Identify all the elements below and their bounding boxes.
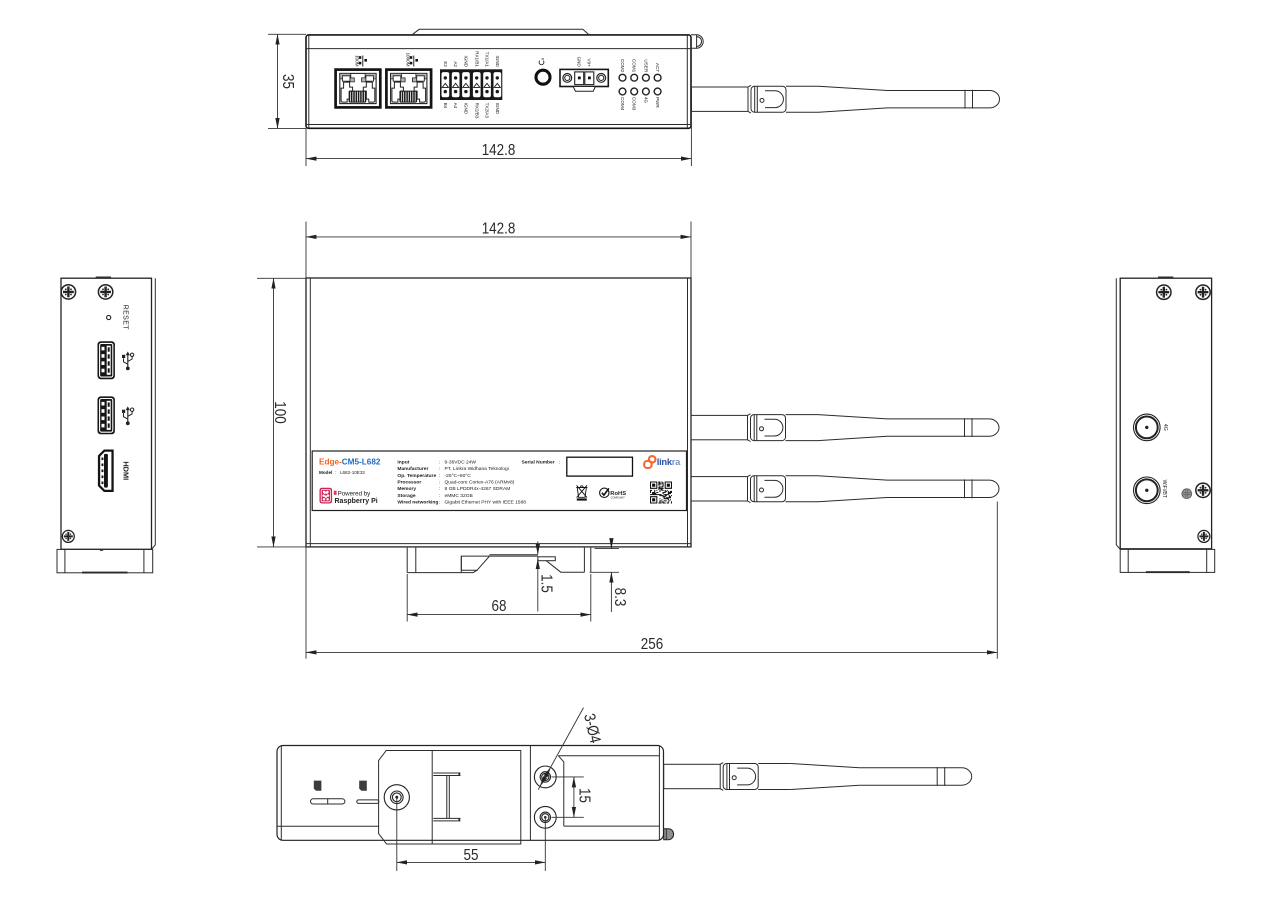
svg-text:Edge-CM5-L682: Edge-CM5-L682: [319, 458, 381, 467]
svg-text:15: 15: [575, 788, 592, 803]
svg-text:A4: A4: [453, 103, 458, 109]
svg-text:WiFi/BT: WiFi/BT: [1161, 480, 1167, 499]
svg-text:68: 68: [492, 598, 507, 615]
svg-text:142.8: 142.8: [482, 142, 516, 159]
svg-text:RX1/B1: RX1/B1: [474, 51, 479, 67]
svg-text:PWR: PWR: [655, 97, 660, 108]
svg-text:Serial Number: Serial Number: [522, 459, 555, 465]
svg-text:COM4: COM4: [620, 97, 625, 111]
svg-text:Manufacturer: Manufacturer: [397, 466, 428, 472]
svg-text:E2: E2: [443, 61, 448, 67]
svg-text:IGND: IGND: [495, 56, 500, 68]
svg-text:TX2/A3: TX2/A3: [485, 103, 490, 119]
svg-text::: :: [439, 474, 440, 479]
svg-text:PT. Linkra Widhana Teknologi: PT. Linkra Widhana Teknologi: [445, 466, 509, 472]
svg-text:1.5: 1.5: [537, 574, 554, 593]
svg-text:linkra: linkra: [657, 456, 681, 467]
svg-text:8.3: 8.3: [611, 588, 628, 607]
svg-text:Quad-core Cortex-A76 (ARMv8): Quad-core Cortex-A76 (ARMv8): [445, 480, 515, 486]
svg-text::: :: [559, 460, 560, 465]
svg-text:Storage: Storage: [397, 493, 415, 499]
svg-text:COM3: COM3: [632, 97, 637, 111]
svg-text:Raspberry Pi: Raspberry Pi: [335, 498, 378, 505]
svg-text:55: 55: [464, 847, 479, 864]
svg-text:142.8: 142.8: [482, 220, 516, 237]
svg-text:IGND: IGND: [495, 103, 500, 115]
svg-text:-25°C~60°C: -25°C~60°C: [445, 473, 472, 479]
svg-text:Processor: Processor: [397, 480, 421, 486]
svg-text:IGND: IGND: [464, 103, 469, 115]
svg-text:GND: GND: [577, 57, 582, 68]
svg-text:Gigabit Ethernet PHY with IEEE: Gigabit Ethernet PHY with IEEE 1588: [445, 500, 527, 506]
svg-text:Wired networking: Wired networking: [397, 500, 438, 506]
svg-text:RX2/B3: RX2/B3: [474, 103, 479, 119]
svg-text:V9+: V9+: [587, 58, 592, 67]
svg-text:256: 256: [641, 636, 663, 653]
svg-text::: :: [439, 481, 440, 486]
svg-text:A2: A2: [453, 61, 458, 67]
svg-text:TX1/A1: TX1/A1: [485, 52, 490, 68]
svg-text::: :: [439, 501, 440, 506]
svg-text:Powered by: Powered by: [338, 491, 372, 498]
svg-text:9-36VDC 24W: 9-36VDC 24W: [445, 459, 477, 465]
svg-text:100: 100: [271, 401, 288, 423]
svg-text:4G: 4G: [1162, 424, 1168, 431]
svg-text:HDMI: HDMI: [122, 461, 131, 480]
svg-text:Model : L682-10E32: Model : L682-10E32: [319, 470, 365, 475]
svg-text:IGND: IGND: [464, 56, 469, 68]
svg-text:COM1: COM1: [632, 59, 637, 73]
svg-text:ACT: ACT: [655, 63, 660, 72]
svg-text:Memory: Memory: [397, 486, 416, 492]
svg-text::: :: [439, 460, 440, 465]
svg-text:COM2: COM2: [620, 59, 625, 73]
svg-text:100M: 100M: [355, 55, 360, 67]
svg-text::: :: [439, 487, 440, 492]
svg-text:Op. Temperature: Op. Temperature: [397, 473, 436, 479]
svg-text:4G: 4G: [643, 97, 648, 104]
svg-text:Input: Input: [397, 459, 409, 465]
svg-text:8 GB LPDDR4x-4267 SDRAM: 8 GB LPDDR4x-4267 SDRAM: [445, 486, 511, 492]
svg-text:eMMC 32GB: eMMC 32GB: [445, 493, 473, 499]
svg-text:1000M: 1000M: [406, 52, 411, 66]
svg-text:USER: USER: [643, 59, 648, 72]
svg-text:COMPLIANT: COMPLIANT: [611, 496, 625, 499]
svg-text:RESET: RESET: [122, 305, 129, 331]
svg-text::: :: [439, 494, 440, 499]
svg-text::: :: [439, 467, 440, 472]
svg-text:B4: B4: [443, 103, 448, 109]
svg-text:35: 35: [279, 74, 296, 89]
